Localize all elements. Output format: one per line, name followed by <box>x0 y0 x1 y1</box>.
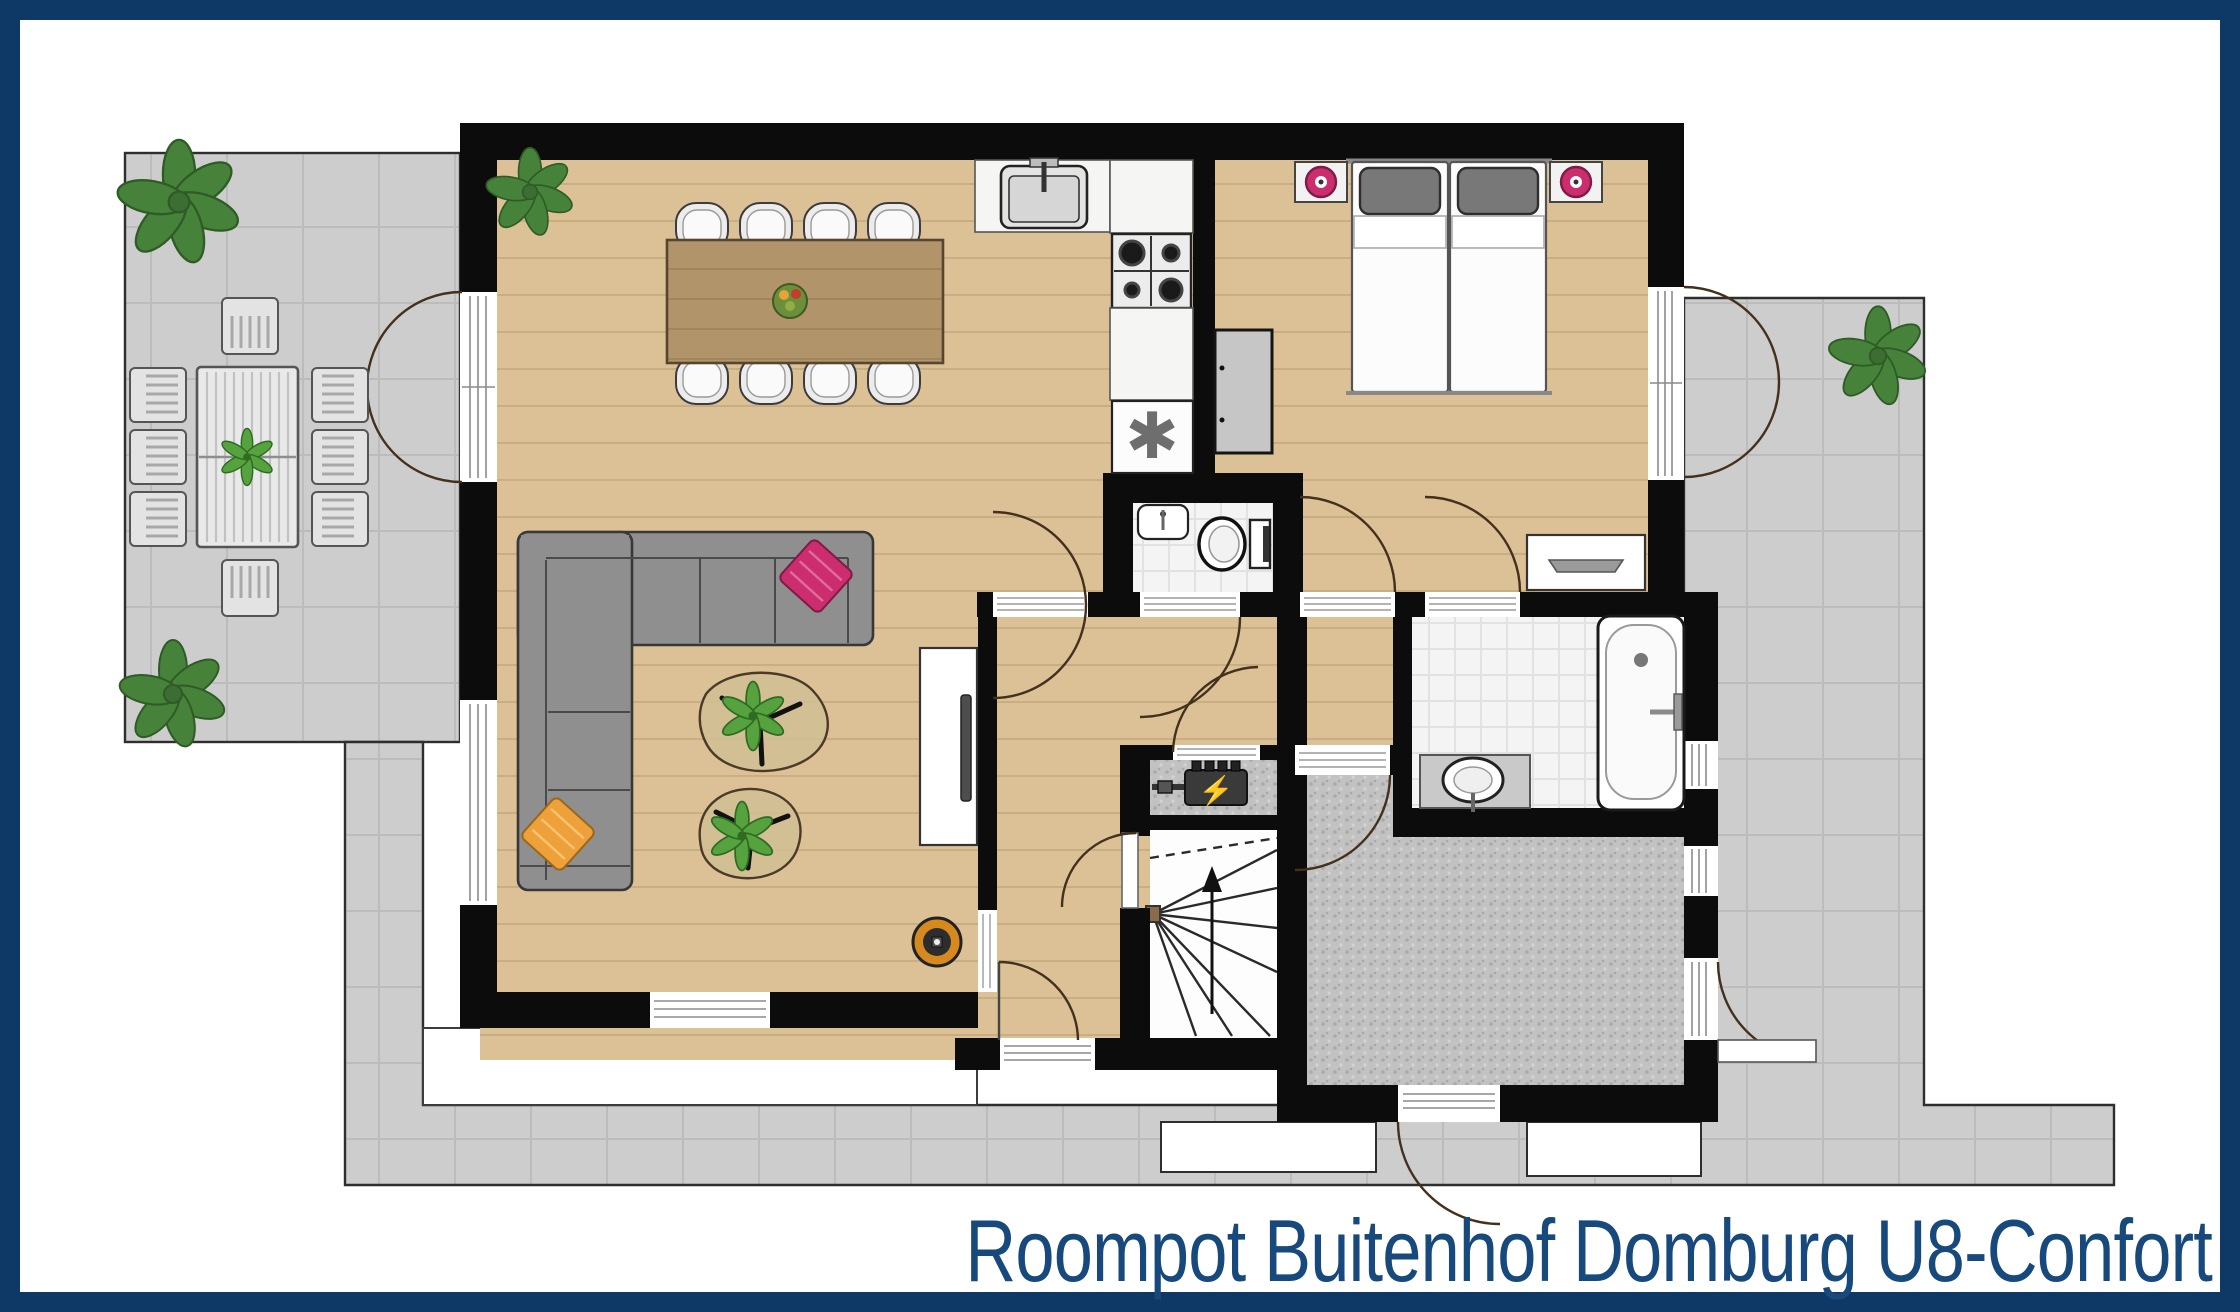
wall-corridor-b <box>1088 592 1140 617</box>
duvet-fold-left <box>1354 216 1446 248</box>
kitchen-counter-top <box>1110 160 1193 233</box>
window-south-stairs <box>1000 1038 1095 1070</box>
wall-north <box>460 123 1684 160</box>
window-east-bathroom <box>1684 741 1718 789</box>
power-bolt-icon: ⚡ <box>1199 774 1234 807</box>
round-floor-lamp <box>913 918 961 966</box>
wall-stairs-west <box>1120 908 1150 1038</box>
dining-area <box>667 203 943 404</box>
double-bed <box>1346 161 1552 393</box>
bathroom-washbasin <box>1420 755 1530 812</box>
bathtub-drain <box>1634 653 1648 667</box>
toilet-bowl <box>1199 518 1270 570</box>
floor-plan-drawing: ✱ <box>0 0 2240 1312</box>
dresser-handle <box>1549 560 1623 572</box>
duvet-fold-right <box>1452 216 1544 248</box>
coffee-table-1 <box>700 673 828 771</box>
wall-bathroom-west <box>1393 617 1412 837</box>
window-west <box>460 700 497 905</box>
tv-sideboard <box>920 648 977 845</box>
wall-kitchen-bedroom <box>1193 160 1215 473</box>
fruit-bowl <box>773 284 807 318</box>
wall-meter-north-b <box>1260 745 1277 760</box>
garden-table <box>197 367 298 547</box>
pillow-left <box>1360 168 1440 214</box>
kitchen-stove <box>1112 234 1191 308</box>
kitchen-sink <box>1001 158 1087 228</box>
window-east-hall <box>1684 846 1718 896</box>
bedroom-dresser <box>1527 535 1645 590</box>
entrance-step-right <box>1527 1122 1701 1176</box>
wall-corridor-east <box>1277 592 1307 1085</box>
kitchen-counter-lower <box>1110 308 1193 400</box>
page-title: Roompot Buitenhof Domburg U8-Confort <box>965 1201 2212 1299</box>
wall-corridor-d <box>1395 592 1425 617</box>
nightstand-left <box>1295 162 1347 202</box>
wall-hall-b <box>1390 745 1412 775</box>
floor-plan-page: ✱ <box>0 0 2240 1312</box>
bedroom-wardrobe <box>1215 330 1272 453</box>
tv-screen <box>961 695 971 801</box>
freezer-symbol-icon: ✱ <box>1125 400 1179 472</box>
kitchen-freezer: ✱ <box>1112 400 1193 473</box>
wall-meter-stairs-divider <box>1150 815 1277 830</box>
bathtub <box>1598 616 1684 810</box>
toilet-washbasin <box>1138 505 1188 539</box>
nightstand-right <box>1550 162 1602 202</box>
wall-meter-west <box>1120 745 1150 830</box>
entrance-step-left <box>1161 1122 1376 1172</box>
pillow-right <box>1458 168 1538 214</box>
wall-corridor-e <box>1520 592 1684 617</box>
coffee-table-2 <box>700 789 801 878</box>
wall-bathroom-south <box>1393 808 1684 837</box>
window-south-living <box>650 992 770 1028</box>
wall-living-hall-stub <box>978 592 997 910</box>
